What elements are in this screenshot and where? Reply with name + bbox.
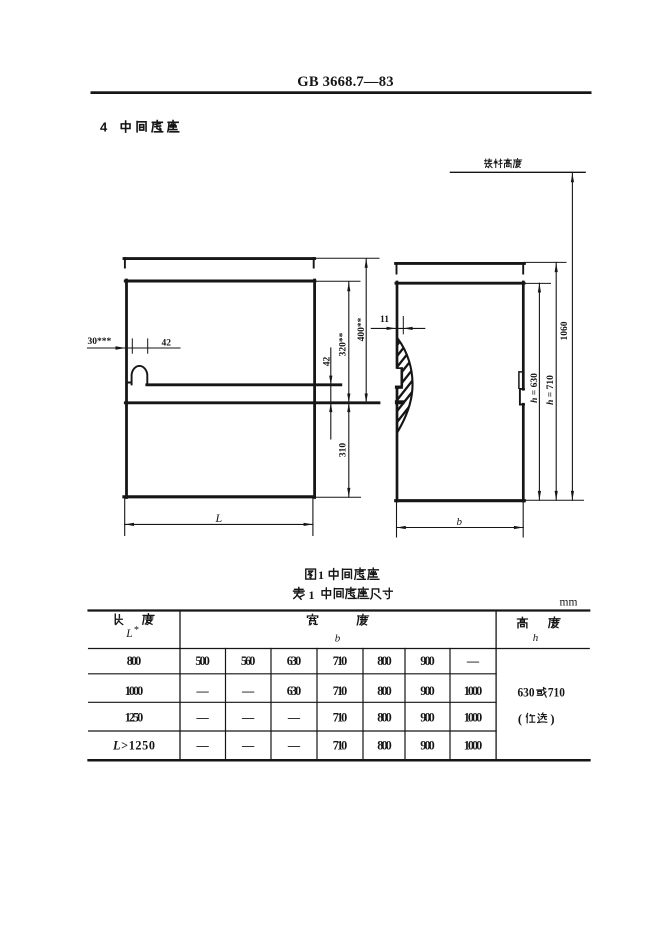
svg-text:1000: 1000: [464, 711, 483, 725]
svg-text:h = 710: h = 710: [546, 375, 556, 405]
svg-text:900: 900: [420, 654, 435, 668]
svg-text:500: 500: [195, 654, 210, 668]
svg-text:710: 710: [333, 739, 348, 753]
svg-text:900: 900: [420, 684, 435, 698]
svg-text:710: 710: [333, 654, 348, 668]
svg-text:—: —: [241, 684, 255, 698]
svg-text:1: 1: [309, 588, 315, 602]
svg-text:800: 800: [127, 654, 142, 668]
svg-text:—: —: [466, 654, 480, 668]
svg-text:1250: 1250: [125, 711, 144, 725]
svg-text:1060: 1060: [560, 321, 570, 340]
svg-text:GB 3668.7—83: GB 3668.7—83: [297, 74, 393, 90]
svg-text:1000: 1000: [464, 739, 483, 753]
svg-text:b: b: [335, 633, 341, 645]
svg-text:4: 4: [100, 120, 108, 135]
svg-text:310: 310: [339, 443, 349, 458]
svg-text:h = 630: h = 630: [530, 373, 540, 403]
svg-text:710: 710: [548, 686, 565, 700]
svg-text:L: L: [125, 628, 132, 640]
svg-text:—: —: [241, 739, 255, 753]
svg-text:710: 710: [333, 684, 348, 698]
svg-text:—: —: [196, 739, 210, 753]
svg-text:710: 710: [333, 711, 348, 725]
svg-text:—: —: [287, 711, 301, 725]
svg-text:h: h: [533, 632, 539, 644]
svg-text:mm: mm: [560, 596, 578, 608]
svg-text:900: 900: [420, 739, 435, 753]
svg-text:800: 800: [377, 684, 392, 698]
svg-text:30***: 30***: [88, 337, 112, 347]
svg-text:11: 11: [380, 315, 389, 325]
svg-text:): ): [550, 712, 554, 726]
svg-text:L>1250: L>1250: [112, 739, 155, 753]
svg-text:800: 800: [377, 711, 392, 725]
svg-text:—: —: [241, 711, 255, 725]
svg-text:1000: 1000: [464, 684, 483, 698]
svg-text:630: 630: [287, 654, 302, 668]
svg-text:400**: 400**: [357, 317, 367, 341]
svg-text:42: 42: [162, 338, 172, 348]
svg-text:900: 900: [420, 711, 435, 725]
svg-text:b: b: [457, 516, 463, 528]
svg-text:800: 800: [377, 654, 392, 668]
svg-text:L: L: [215, 511, 223, 525]
svg-text:1000: 1000: [125, 684, 144, 698]
svg-text:630: 630: [518, 686, 535, 700]
svg-text:1: 1: [318, 568, 324, 582]
svg-text:—: —: [196, 684, 210, 698]
svg-text:—: —: [287, 739, 301, 753]
svg-text:560: 560: [241, 654, 256, 668]
svg-text:630: 630: [287, 684, 302, 698]
svg-text:*: *: [134, 625, 139, 636]
svg-text:—: —: [196, 711, 210, 725]
svg-text:320**: 320**: [338, 332, 348, 356]
svg-text:(: (: [518, 712, 522, 726]
svg-text:800: 800: [377, 739, 392, 753]
svg-text:42: 42: [322, 357, 332, 367]
